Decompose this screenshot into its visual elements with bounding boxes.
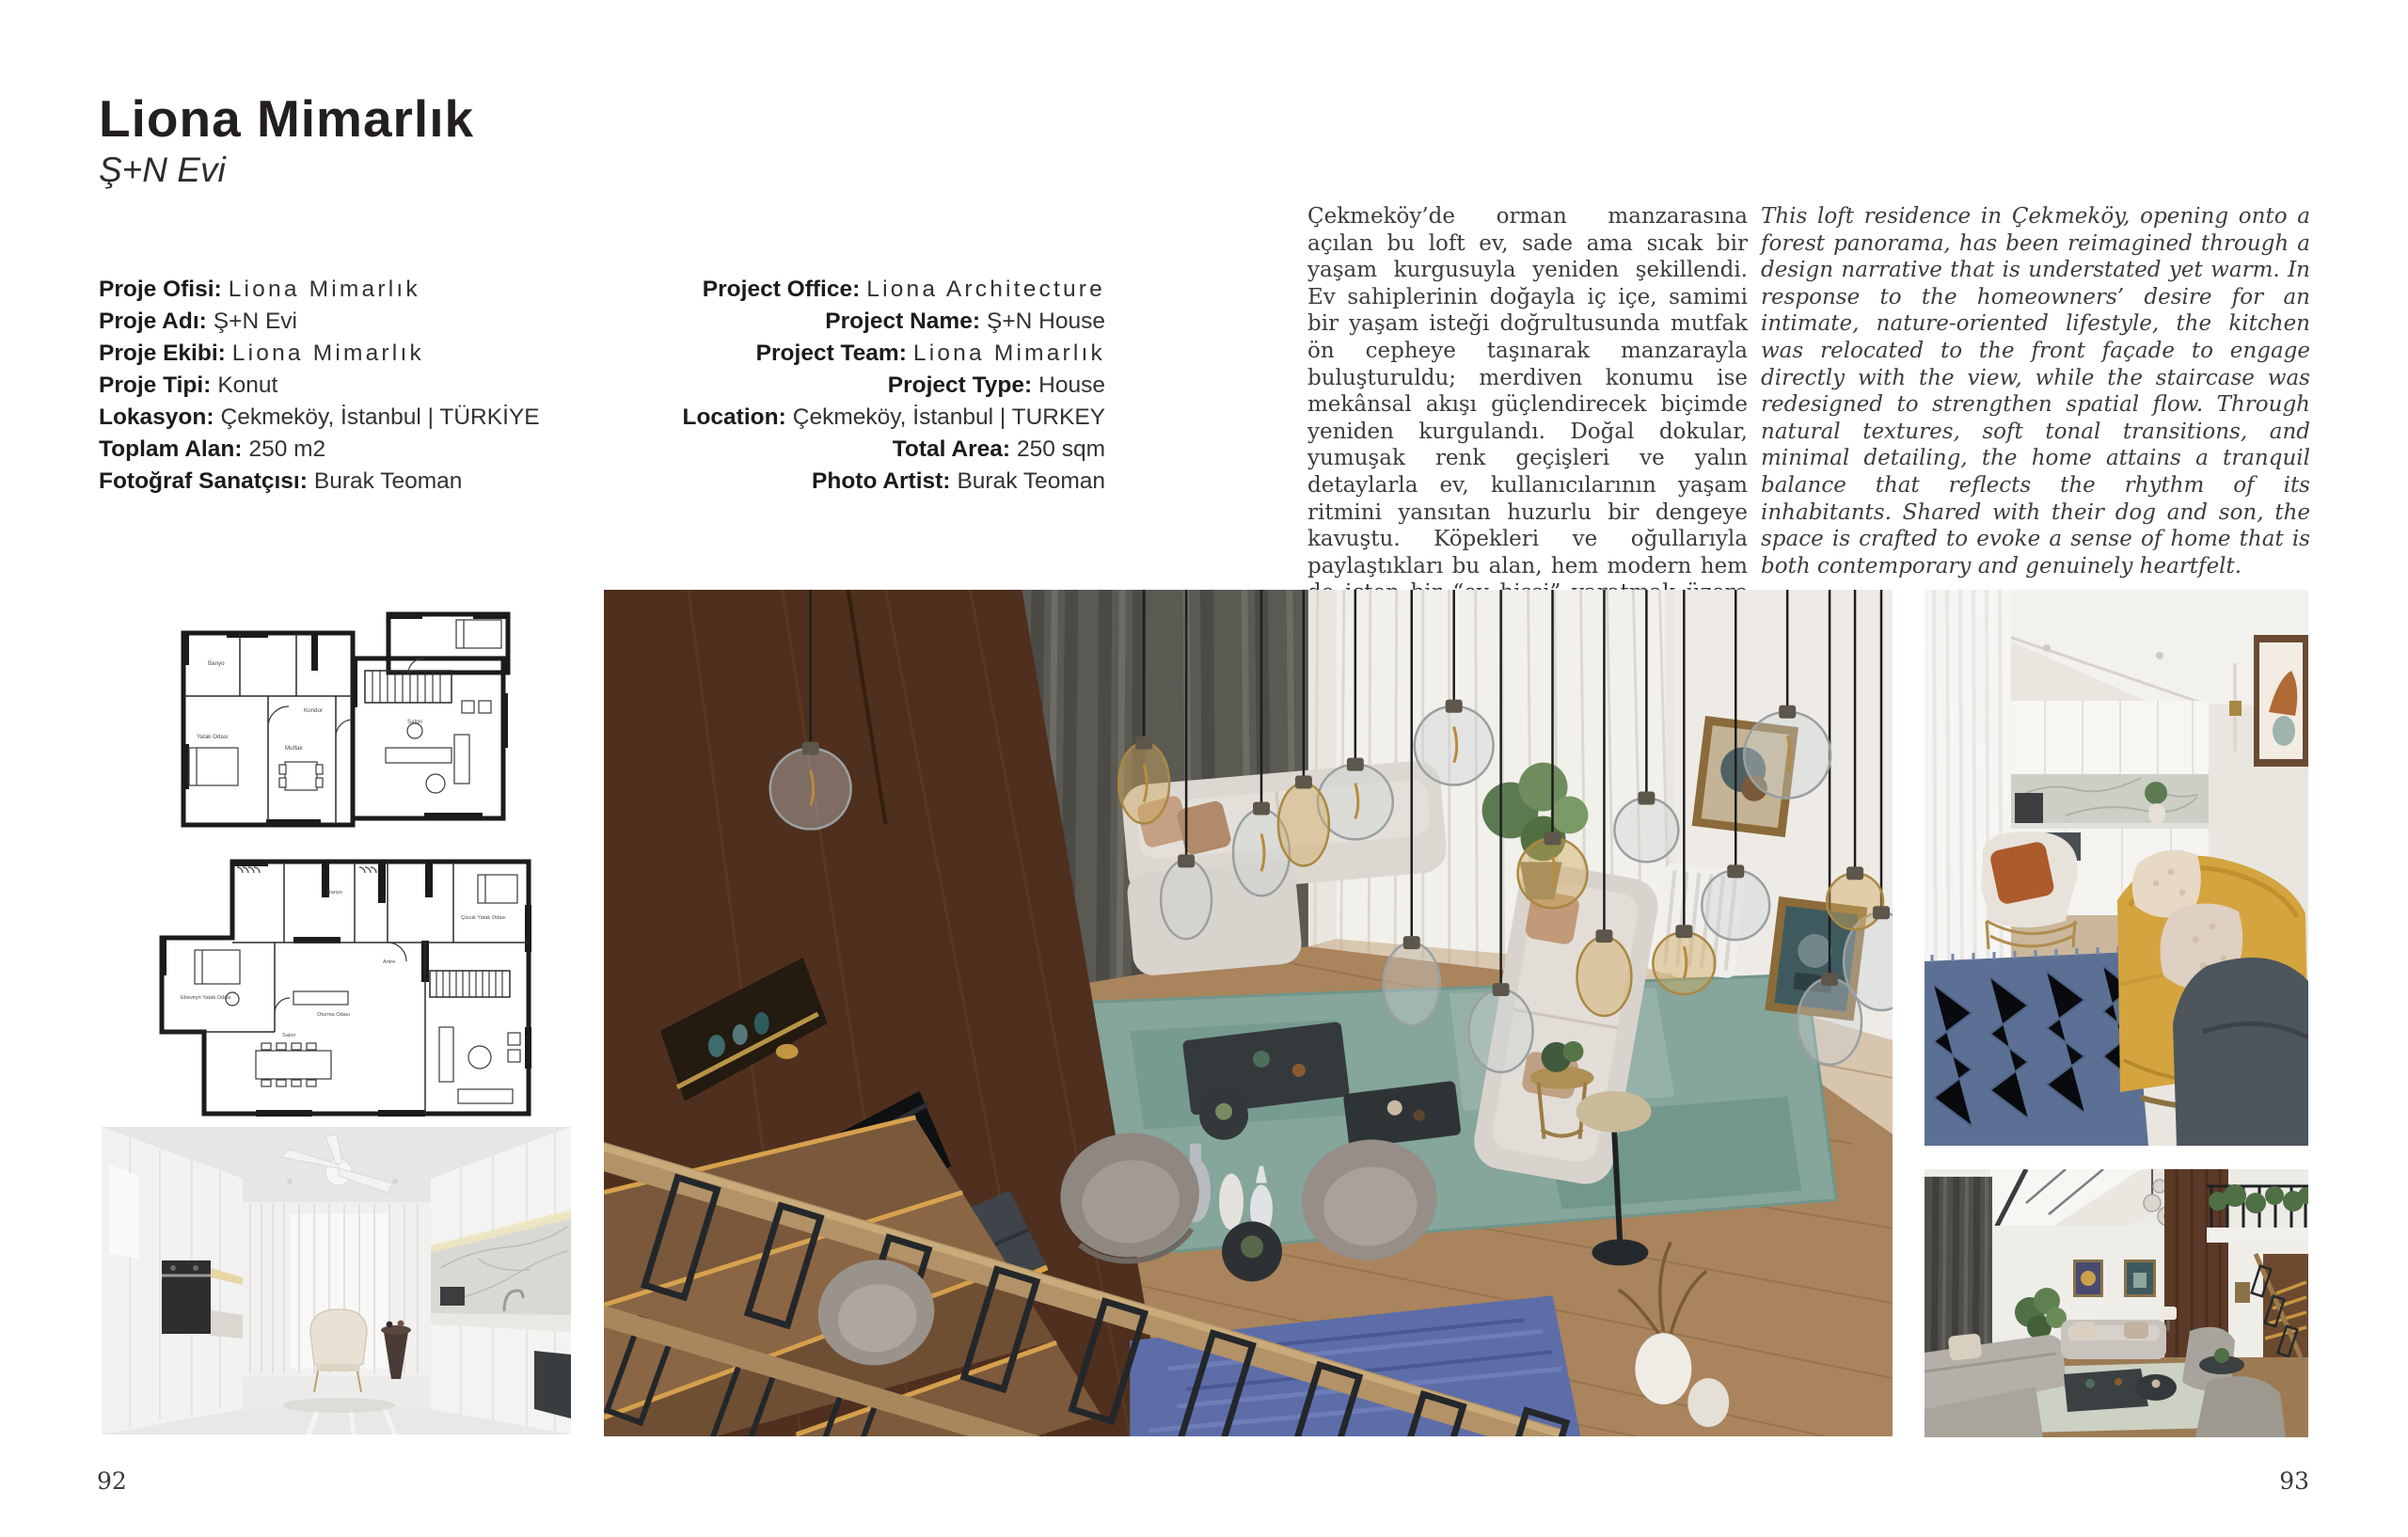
page-number-left: 92 <box>97 1467 127 1495</box>
info-value: Burak Teoman <box>957 468 1105 494</box>
info-label: Project Type: <box>888 372 1032 398</box>
info-row: Project Team:Liona Mimarlık <box>621 338 1105 370</box>
info-label: Project Name: <box>825 309 980 334</box>
living-room-2-illustration <box>1925 1169 2308 1437</box>
info-label: Proje Ekibi: <box>99 341 226 366</box>
info-value: Ş+N Evi <box>214 309 297 334</box>
info-label: Project Office: <box>703 277 860 302</box>
page-number-right: 93 <box>2253 1467 2309 1495</box>
info-row: Project Name:Ş+N House <box>621 306 1105 338</box>
info-value: 250 m2 <box>248 436 325 462</box>
plan-outer-walls <box>162 862 529 1114</box>
floor-plan-lower: Ebeveyn Yatak Odası Oturma Odası Salon Ç… <box>143 848 542 1123</box>
info-label: Proje Ofisi: <box>99 277 222 302</box>
info-value: Liona Mimarlık <box>913 341 1105 366</box>
room-label: Banyo <box>327 890 342 895</box>
photo-kitchen-yellow-sofa <box>1925 590 2308 1146</box>
room-label: Salon <box>282 1033 295 1038</box>
sheer-curtain-left <box>1925 590 2011 1022</box>
info-value: Konut <box>217 372 277 398</box>
living-room-illustration <box>604 590 1893 1436</box>
kitchen-right-cabinets <box>431 1127 571 1434</box>
info-value: House <box>1038 372 1105 398</box>
plan-furniture <box>189 620 501 793</box>
info-label: Total Area: <box>893 436 1010 462</box>
staircase-right <box>2228 1243 2308 1362</box>
photo-living-room-loft-view <box>604 590 1893 1436</box>
info-value: Liona Architecture <box>866 277 1105 302</box>
room-label: Salon <box>407 719 422 725</box>
room-label: Koridor <box>304 707 323 714</box>
dishwasher <box>534 1351 571 1418</box>
info-label: Fotoğraf Sanatçısı: <box>99 468 308 494</box>
info-label: Photo Artist: <box>812 468 950 494</box>
room-label: Ebeveyn Yatak Odası <box>181 995 231 1001</box>
blue-rug <box>1925 946 2148 1146</box>
magazine-spread: Liona Mimarlık Ş+N Evi Proje Ofisi:Liona… <box>0 0 2408 1537</box>
info-row: Proje Ekibi:Liona Mimarlık <box>99 338 569 370</box>
coffee-machine <box>2015 793 2043 823</box>
project-info-turkish: Proje Ofisi:Liona Mimarlık Proje Adı:Ş+N… <box>99 274 569 498</box>
plan-inner-walls <box>162 862 529 1114</box>
floor-plan-upper-drawing: Yatak Odası Banyo Koridor Salon Mutfak <box>174 607 517 832</box>
room-label: Banyo <box>208 660 225 667</box>
info-row: Toplam Alan:250 m2 <box>99 434 569 466</box>
info-value: Liona Mimarlık <box>229 277 420 302</box>
info-label: Proje Adı: <box>99 309 207 334</box>
info-value: Burak Teoman <box>314 468 463 494</box>
hallway-art <box>2235 1282 2250 1303</box>
floor-plan-lower-drawing: Ebeveyn Yatak Odası Oturma Odası Salon Ç… <box>143 848 542 1123</box>
info-row: Proje Tipi:Konut <box>99 370 569 402</box>
info-row: Fotoğraf Sanatçısı:Burak Teoman <box>99 466 569 498</box>
body-text-english: This loft residence in Çekmeköy, opening… <box>1761 203 2310 579</box>
coffee-machine <box>440 1287 465 1306</box>
kitchen-left-cabinets <box>102 1127 243 1434</box>
page-subtitle: Ş+N Evi <box>99 151 474 190</box>
body-text-turkish: Çekmeköy’de orman manzarasına açılan bu … <box>1307 203 1748 634</box>
photo-white-kitchen <box>102 1127 571 1434</box>
info-value: Liona Mimarlık <box>232 341 424 366</box>
built-in-oven <box>162 1260 211 1334</box>
plan-stair-hatch <box>372 671 440 703</box>
room-label: Oturma Odası <box>317 1012 351 1018</box>
room-label: Çocuk Yatak Odası <box>461 915 506 921</box>
info-row: Proje Ofisi:Liona Mimarlık <box>99 274 569 306</box>
page-title: Liona Mimarlık <box>99 92 474 147</box>
info-value: Çekmeköy, İstanbul | TURKEY <box>793 404 1105 430</box>
dark-gray-chair <box>2173 958 2308 1146</box>
info-row: Project Type:House <box>621 370 1105 402</box>
floor-plan-upper: Yatak Odası Banyo Koridor Salon Mutfak <box>174 607 517 832</box>
info-value: 250 sqm <box>1017 436 1105 462</box>
white-kitchen-illustration <box>102 1127 571 1434</box>
plan-stair-hatch <box>436 971 502 997</box>
project-info-english: Project Office:Liona Architecture Projec… <box>621 274 1105 498</box>
countertop <box>2011 823 2209 829</box>
info-row: Photo Artist:Burak Teoman <box>621 466 1105 498</box>
sofa-pillow <box>1948 1333 1983 1360</box>
room-label: Mutfak <box>285 745 303 752</box>
plant-small <box>2145 782 2167 804</box>
info-label: Location: <box>683 404 786 430</box>
info-label: Toplam Alan: <box>99 436 242 462</box>
info-row: Proje Adı:Ş+N Evi <box>99 306 569 338</box>
info-row: Total Area:250 sqm <box>621 434 1105 466</box>
info-label: Lokasyon: <box>99 404 214 430</box>
kitchen-sofa-illustration <box>1925 590 2308 1146</box>
info-label: Proje Tipi: <box>99 372 211 398</box>
info-value: Ş+N House <box>987 309 1105 334</box>
room-label: Antre <box>383 959 395 965</box>
plan-furniture <box>195 867 520 1103</box>
room-label: Yatak Odası <box>197 734 229 740</box>
info-row: Project Office:Liona Architecture <box>621 274 1105 306</box>
info-value: Çekmeköy, İstanbul | TÜRKİYE <box>221 404 540 430</box>
info-row: Location:Çekmeköy, İstanbul | TURKEY <box>621 402 1105 434</box>
info-label: Project Team: <box>756 341 907 366</box>
photo-living-room-eye-level <box>1925 1169 2308 1437</box>
info-row: Lokasyon:Çekmeköy, İstanbul | TÜRKİYE <box>99 402 569 434</box>
header: Liona Mimarlık Ş+N Evi <box>99 92 474 190</box>
